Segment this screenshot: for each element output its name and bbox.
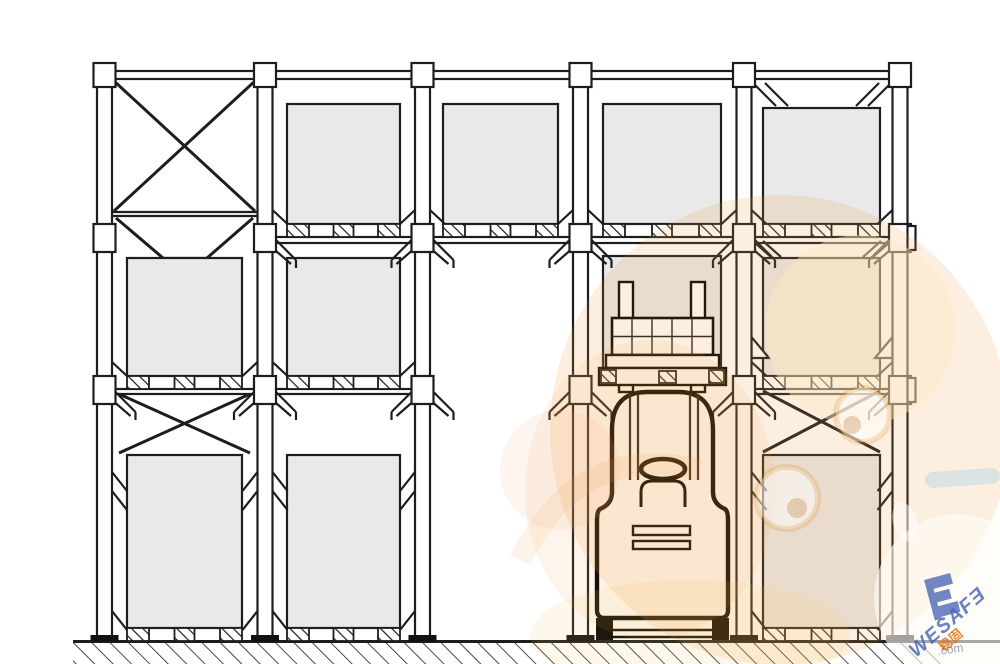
pallet-load-mid-bay2 bbox=[287, 258, 400, 376]
mascot-eye bbox=[836, 388, 890, 442]
cross-brace-bay1-bottom bbox=[119, 394, 250, 453]
pallet-load-top-bay3 bbox=[443, 104, 558, 224]
rack-elevation-drawing: WESAFƎ 稳固 .com bbox=[0, 0, 1000, 664]
pallet-load-top-bay2 bbox=[287, 104, 400, 224]
rack-upright bbox=[97, 65, 112, 641]
top-beam bbox=[97, 71, 908, 79]
rack-upright bbox=[258, 65, 273, 641]
rack-upright bbox=[415, 65, 430, 641]
pallet-load-bottom-bay2 bbox=[287, 455, 400, 628]
pallet-load-mid-bay1 bbox=[127, 258, 242, 376]
mascot-eye bbox=[756, 467, 818, 529]
entry-funnel bbox=[112, 212, 258, 258]
corner-braces-bay5-top bbox=[753, 83, 891, 106]
pallet-load-top-bay4 bbox=[603, 104, 721, 224]
cross-brace-bay1-top bbox=[114, 81, 255, 211]
pallet-load-bottom-bay1 bbox=[127, 455, 242, 628]
drawing-page: WESAFƎ 稳固 .com bbox=[0, 0, 1000, 664]
